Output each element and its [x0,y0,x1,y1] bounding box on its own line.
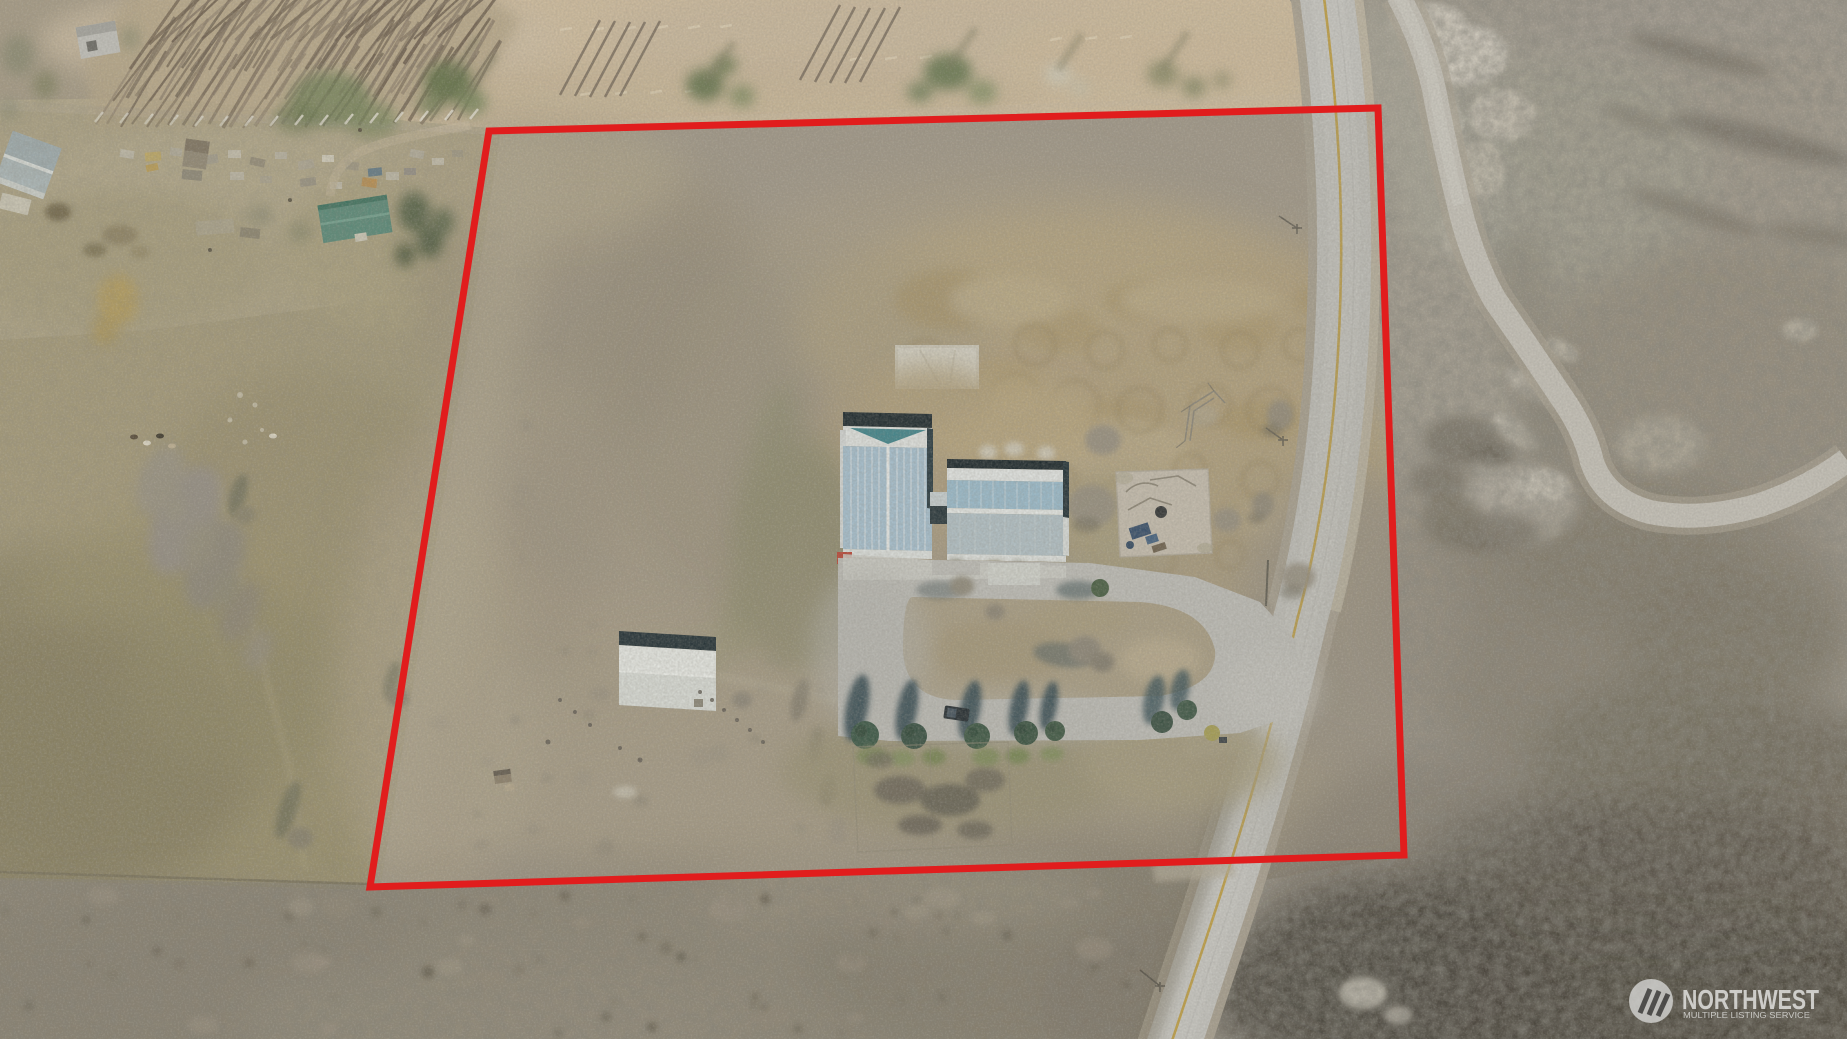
svg-text:MULTIPLE LISTING SERVICE: MULTIPLE LISTING SERVICE [1683,1010,1810,1020]
